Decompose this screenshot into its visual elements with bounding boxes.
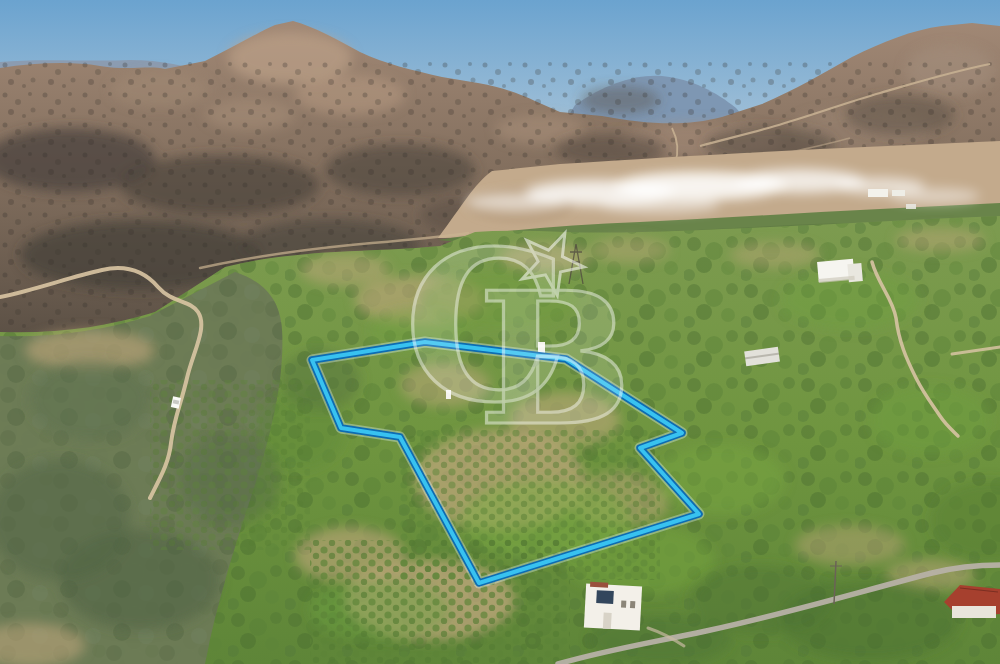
two-story-house — [584, 582, 642, 631]
aerial-photo: C B — [0, 0, 1000, 664]
aerial-photo-canvas: C B — [0, 0, 1000, 664]
